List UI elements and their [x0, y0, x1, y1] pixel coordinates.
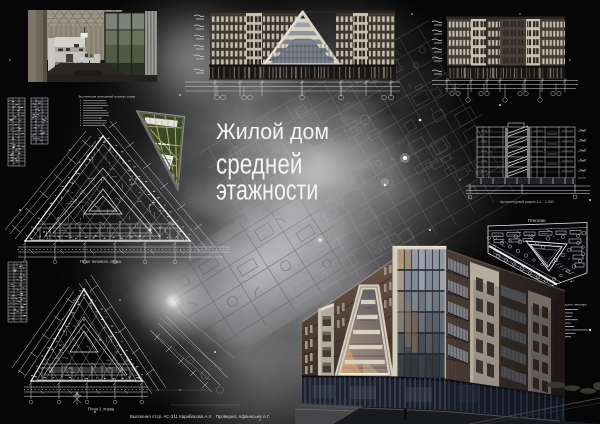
- svg-text:План типового этажа: План типового этажа: [80, 259, 122, 264]
- svg-text:Экспликация помещений типового: Экспликация помещений типового этажа: [78, 95, 136, 99]
- svg-text:Генплан: Генплан: [528, 218, 546, 223]
- svg-text:План 1 этажа: План 1 этажа: [88, 407, 115, 412]
- svg-text:Архитектурный разрез 1-1 1:: Архитектурный разрез 1-1 1:200: [500, 200, 554, 204]
